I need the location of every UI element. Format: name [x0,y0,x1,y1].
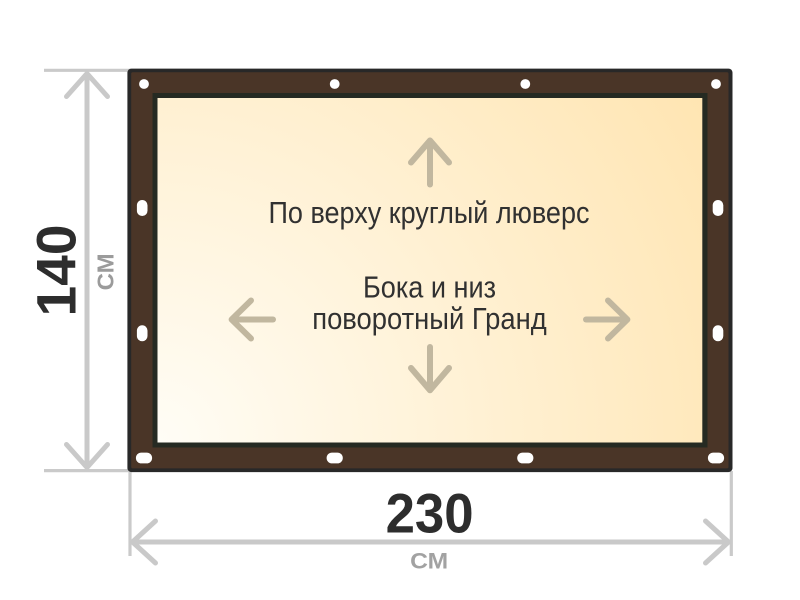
svg-text:поворотный Гранд: поворотный Гранд [312,301,547,336]
svg-text:140: 140 [25,225,87,317]
svg-text:СМ: СМ [410,548,448,573]
svg-text:Бока и низ: Бока и низ [363,269,496,304]
svg-text:СМ: СМ [92,253,118,290]
svg-text:230: 230 [386,483,474,545]
svg-text:По верху круглый люверс: По верху круглый люверс [269,195,590,230]
